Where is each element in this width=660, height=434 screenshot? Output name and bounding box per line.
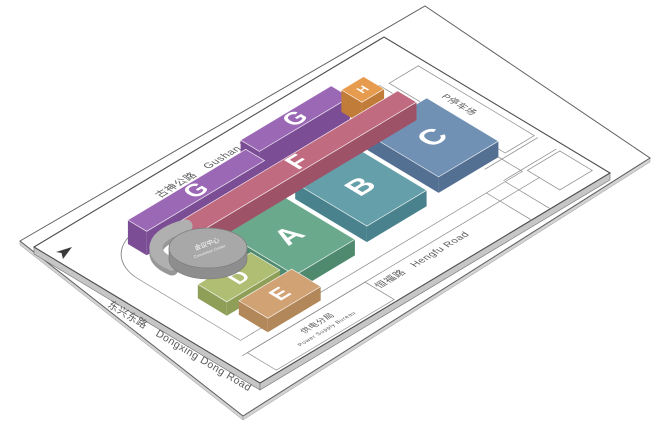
site-map: 古神公路Gushan Road 恒福路Hengfu Road P停车场 供电分局…: [0, 0, 660, 434]
convention-center-building[interactable]: 会议中心 Convention Center: [169, 228, 247, 279]
